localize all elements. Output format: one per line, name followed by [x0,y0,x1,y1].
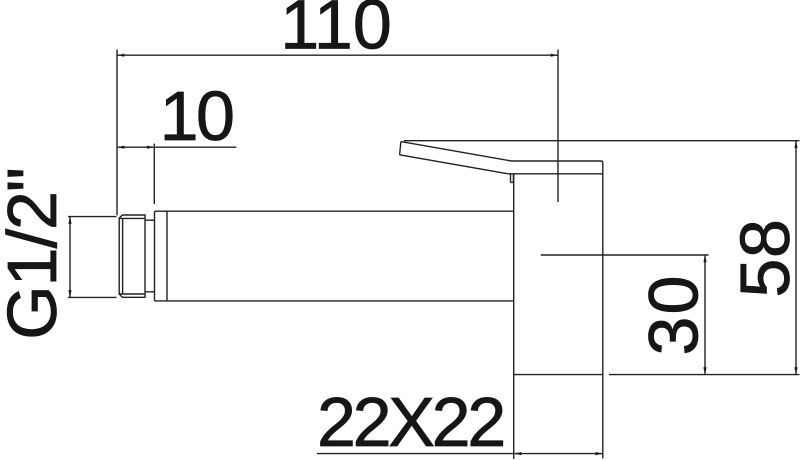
svg-text:10: 10 [160,77,233,155]
svg-text:30: 30 [635,274,713,356]
svg-text:22X22: 22X22 [317,383,503,460]
svg-text:58: 58 [726,219,800,298]
svg-text:110: 110 [280,0,392,64]
svg-text:G1/2": G1/2" [0,168,71,340]
